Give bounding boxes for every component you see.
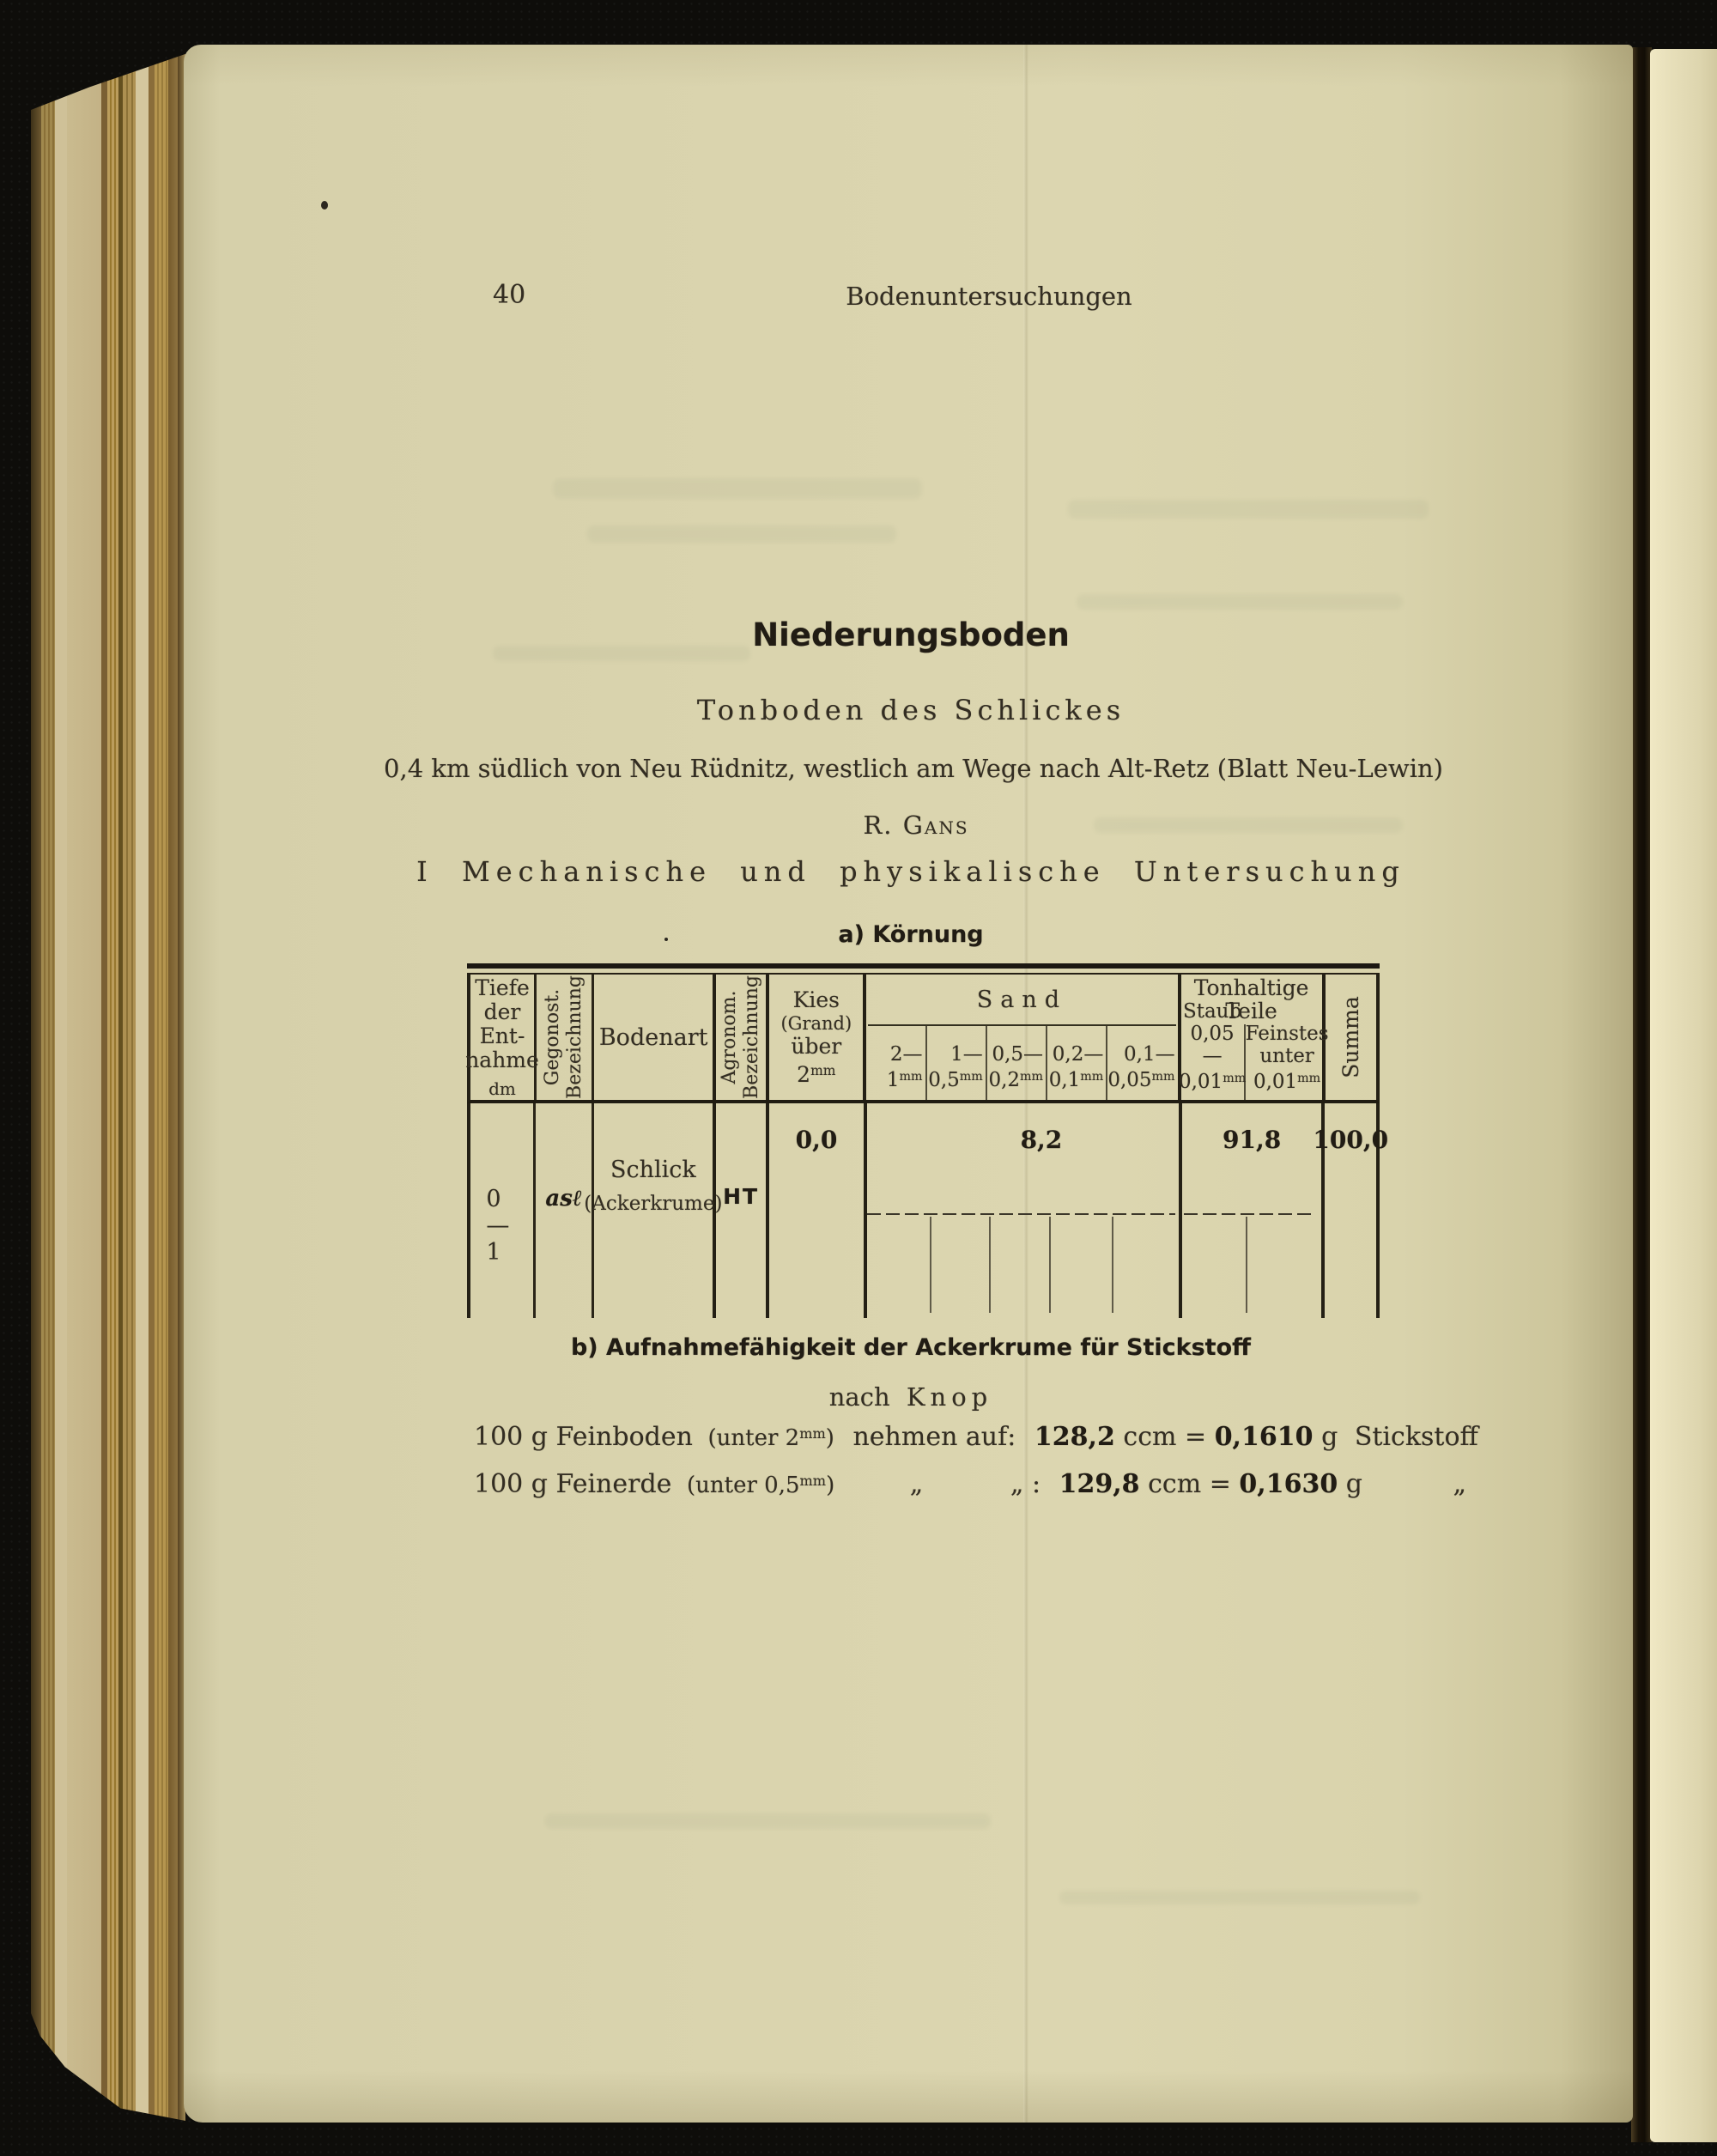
header-sand-col-2: 1— 0,5mm bbox=[925, 1026, 986, 1100]
nitrogen-line-2: 100 g Feinerde (unter 0,5mm) „ „ : 129,8… bbox=[474, 1469, 1466, 1499]
scanned-page: 40 Bodenuntersuchungen Niederungsboden T… bbox=[184, 45, 1633, 2123]
cell-agronom: HT bbox=[716, 1103, 770, 1318]
header-sand-col-4: 0,2— 0,1mm bbox=[1046, 1026, 1106, 1100]
ink-speck bbox=[321, 201, 328, 210]
header-tiefe: Tiefe der Ent- nahme dm bbox=[470, 975, 537, 1100]
heading-tonboden: Tonboden des Schlickes bbox=[697, 694, 1125, 726]
ink-speck bbox=[664, 938, 668, 941]
cell-ton-sum: 91,8 bbox=[1182, 1103, 1326, 1318]
header-geognost-bezeichnung: Gegonost. Bezeichnung bbox=[537, 975, 594, 1100]
header-bodenart: Bodenart bbox=[594, 975, 716, 1100]
author-name: R. Gans bbox=[863, 811, 968, 840]
sand-sum-divider bbox=[867, 1213, 1175, 1215]
left-page-edges bbox=[31, 50, 185, 2121]
header-kies: Kies (Grand) über 2mm bbox=[769, 975, 866, 1100]
facing-page-edge bbox=[1650, 49, 1717, 2142]
header-sand-group: Sand 2— 1mm 1— 0,5mm 0,5— 0,2mm bbox=[866, 975, 1180, 1100]
nitrogen-line-1: 100 g Feinboden (unter 2mm) nehmen auf: … bbox=[474, 1422, 1478, 1452]
cell-bodenart: Schlick (Ackerkrume) bbox=[594, 1103, 716, 1318]
heading-niederungsboden: Niederungsboden bbox=[752, 616, 1070, 653]
cell-tiefe: 0—1 bbox=[470, 1103, 536, 1318]
ton-sum-divider bbox=[1184, 1213, 1317, 1215]
page-number: 40 bbox=[493, 280, 525, 310]
header-staub: Staub 0,05— 0,01mm bbox=[1181, 1024, 1244, 1100]
cell-summa: 100,0 bbox=[1325, 1103, 1376, 1318]
part-heading: I Mechanische und physikalische Untersuc… bbox=[416, 855, 1405, 888]
header-feinstes: Feinstes unter 0,01mm bbox=[1244, 1024, 1329, 1100]
header-sand-col-5: 0,1— 0,05mm bbox=[1106, 1026, 1177, 1100]
method-line: nach Knop bbox=[829, 1382, 992, 1412]
table-data-row: 0—1 asℓ Schlick (Ackerkrume) HT 0,0 8,2 bbox=[467, 1103, 1380, 1318]
running-title: Bodenuntersuchungen bbox=[846, 282, 1132, 311]
book-gutter-shadow bbox=[1631, 47, 1652, 2142]
grain-size-table: Tiefe der Ent- nahme dm Gegonost. Bezeic… bbox=[467, 963, 1380, 1318]
location-line: 0,4 km südlich von Neu Rüdnitz, westlich… bbox=[384, 754, 1443, 783]
cell-sand-sum: 8,2 bbox=[867, 1103, 1182, 1318]
header-sand-col-3: 0,5— 0,2mm bbox=[986, 1026, 1046, 1100]
table-caption: a) Körnung bbox=[838, 921, 983, 948]
header-tonhaltige-group: Tonhaltige Teile Staub 0,05— 0,01mm Fein… bbox=[1181, 975, 1326, 1100]
header-sand-col-1: 2— 1mm bbox=[866, 1026, 925, 1100]
header-agronom-bezeichnung: Agronom. Bezeichnung bbox=[716, 975, 769, 1100]
cell-kies: 0,0 bbox=[769, 1103, 866, 1318]
header-summa: Summa bbox=[1326, 975, 1376, 1100]
section-b-caption: b) Aufnahmefähigkeit der Ackerkrume für … bbox=[571, 1334, 1251, 1361]
table-header-row: Tiefe der Ent- nahme dm Gegonost. Bezeic… bbox=[467, 975, 1380, 1103]
book-scan: { "palette": { "paper": "#dad4ae", "pape… bbox=[0, 0, 1717, 2156]
